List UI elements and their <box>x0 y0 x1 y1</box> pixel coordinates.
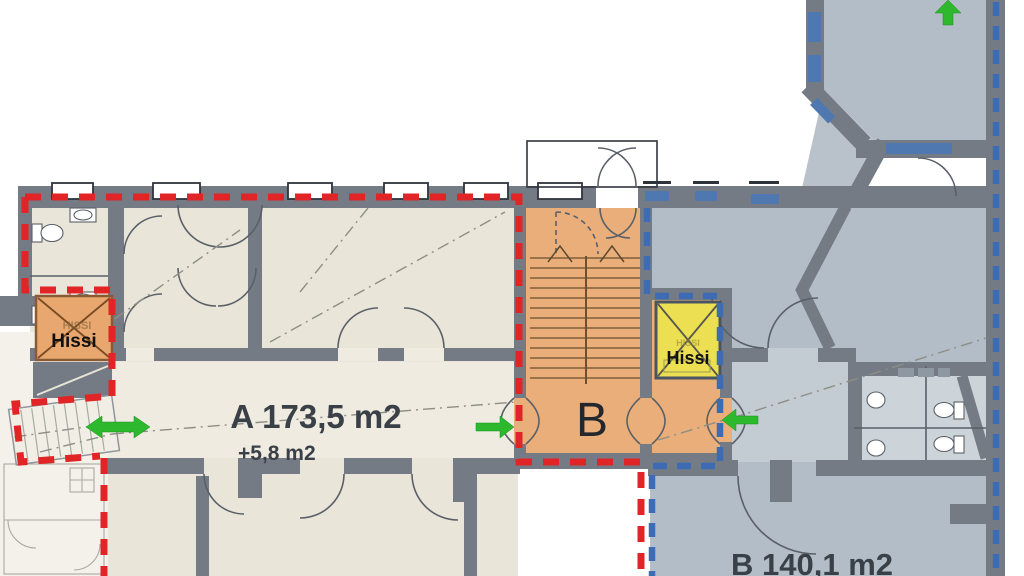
unit-a-extra-area-label: +5,8 m2 <box>238 442 316 465</box>
entrance-canopy-outline <box>527 141 657 187</box>
toilet-icon <box>954 402 964 419</box>
window-icon <box>645 191 669 201</box>
floor-fills <box>0 0 986 576</box>
window-icon <box>695 191 717 201</box>
elevator-right: HISSI Hissi <box>656 302 720 378</box>
window-icon <box>751 194 779 204</box>
elevator-left: HISSI Hissi <box>36 296 112 360</box>
sink-icon <box>867 392 885 408</box>
window-icon <box>808 55 821 82</box>
elevator-ghost-label: HISSI <box>676 338 700 348</box>
unit-b-area-label: B 140,1 m2 <box>731 547 893 576</box>
floor-plan-page: HISSI Hissi HISSI Hissi A 173,5 m2 +5,8 … <box>0 0 1024 576</box>
window-icon <box>808 12 821 42</box>
elevator-label: Hissi <box>51 331 96 352</box>
unit-b-corridor-floor <box>732 362 854 462</box>
sink-icon <box>867 440 885 456</box>
elevator-label: Hissi <box>666 348 709 368</box>
window-icon <box>886 143 952 154</box>
window-icon <box>538 183 582 199</box>
floor-plan-drawing: HISSI Hissi HISSI Hissi A 173,5 m2 +5,8 … <box>0 0 1024 576</box>
unit-a-area-label: A 173,5 m2 <box>230 398 401 435</box>
stairwell-label: B <box>576 394 608 447</box>
toilet-icon <box>954 436 964 453</box>
